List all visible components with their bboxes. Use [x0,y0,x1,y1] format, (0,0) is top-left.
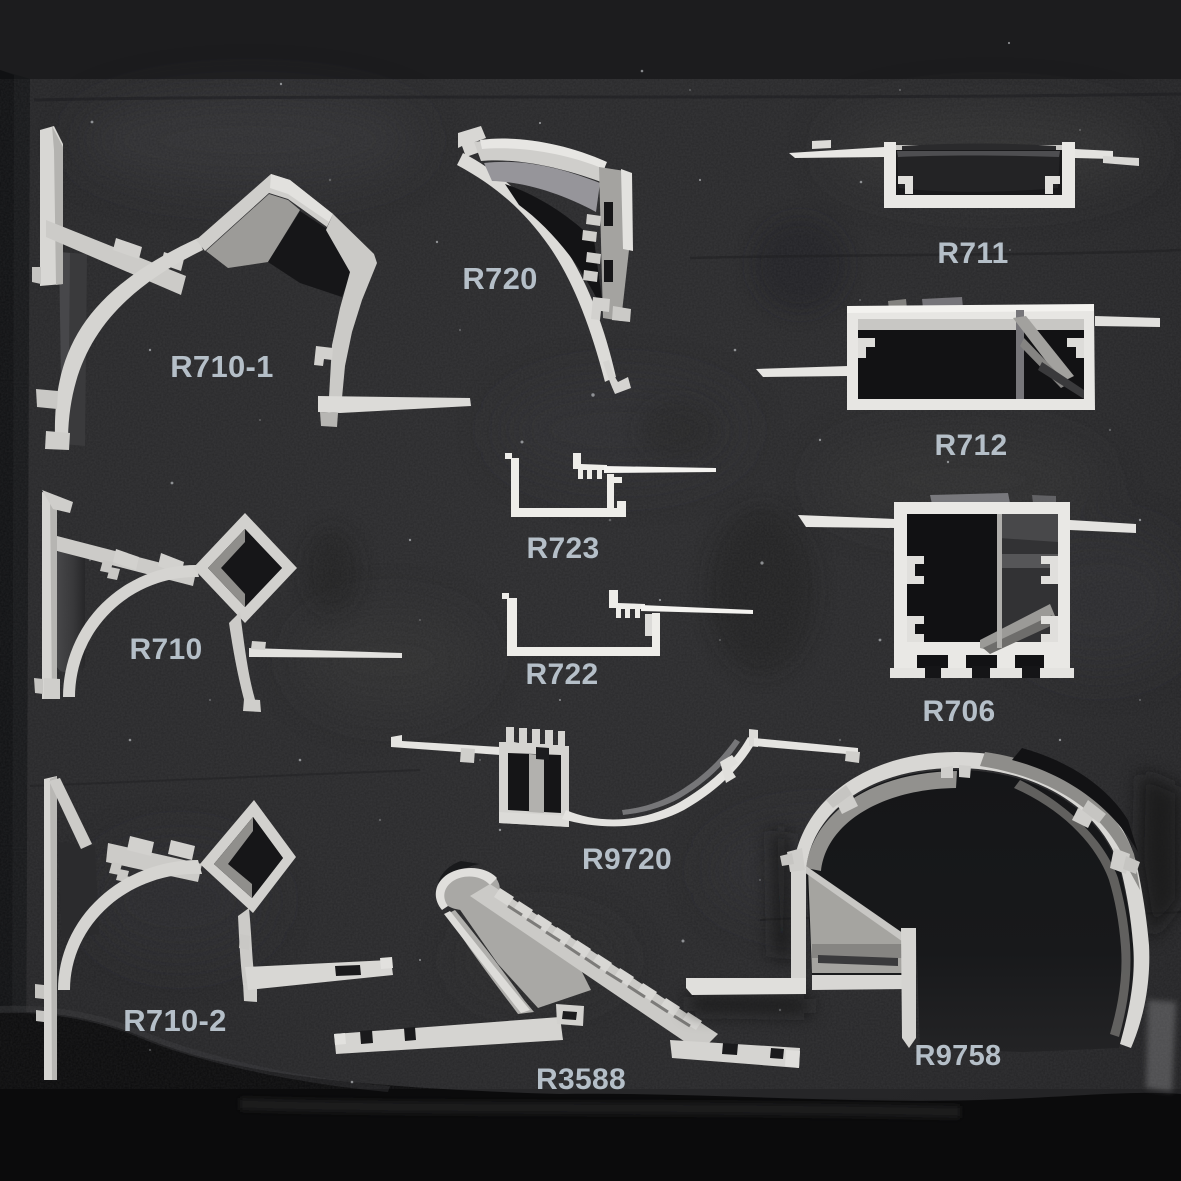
svg-text:R9758: R9758 [915,1040,1002,1072]
svg-text:R3588: R3588 [536,1063,626,1096]
svg-text:R722: R722 [526,658,599,691]
svg-text:R706: R706 [923,695,996,728]
svg-text:R710-2: R710-2 [123,1003,226,1038]
svg-text:R9720: R9720 [582,843,672,876]
svg-text:R720: R720 [462,261,537,296]
svg-text:R712: R712 [935,429,1008,462]
svg-text:R711: R711 [937,237,1008,270]
svg-text:R710-1: R710-1 [170,349,273,384]
svg-text:R710: R710 [130,633,203,666]
svg-text:R723: R723 [527,532,600,565]
